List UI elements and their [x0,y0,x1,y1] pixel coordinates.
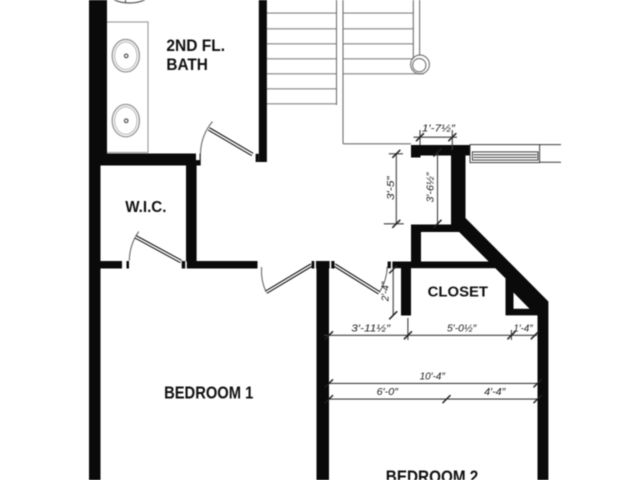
svg-text:1′-7½″: 1′-7½″ [422,123,456,134]
svg-text:3′-5″: 3′-5″ [386,176,397,200]
svg-text:BEDROOM 1: BEDROOM 1 [164,382,253,402]
svg-text:2ND FL.: 2ND FL. [166,36,225,55]
svg-text:W.I.C.: W.I.C. [125,199,166,216]
svg-text:BEDROOM 2: BEDROOM 2 [386,467,479,480]
svg-text:CLOSET: CLOSET [428,285,488,301]
svg-text:5′-0½″: 5′-0½″ [447,323,477,334]
svg-text:1′-4″: 1′-4″ [513,323,533,334]
svg-text:10′-4″: 10′-4″ [420,372,446,383]
svg-text:4′-4″: 4′-4″ [484,387,506,398]
svg-text:3′-6½″: 3′-6½″ [426,172,437,202]
svg-text:2′-4″: 2′-4″ [381,281,392,302]
svg-text:BATH: BATH [166,55,208,74]
svg-text:6′-0″: 6′-0″ [377,387,399,398]
svg-text:3′-11½″: 3′-11½″ [351,323,391,334]
